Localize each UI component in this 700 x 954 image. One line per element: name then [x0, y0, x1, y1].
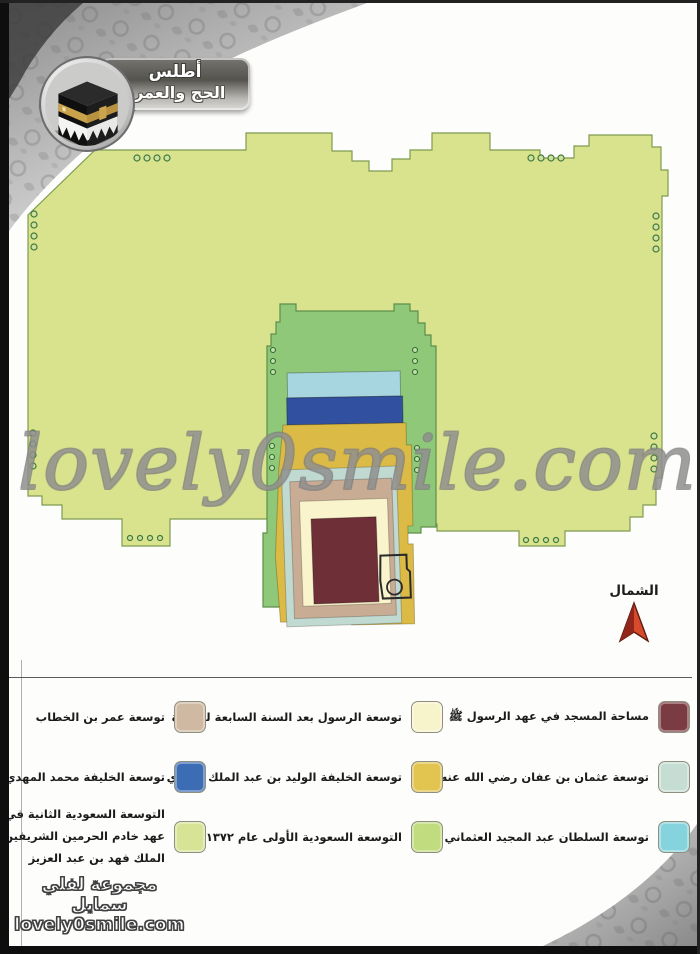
legend-item-ottoman-abdulmajid-expansion: توسعة السلطان عبد المجيد العثماني	[443, 821, 690, 853]
legend-label: التوسعة السعودية الأولى عام ١٣٧٢ هـ	[190, 830, 402, 844]
page-edge-left	[0, 0, 9, 954]
atlas-page: lovely0smile.com أطلس الحج والعمرة	[0, 0, 700, 954]
region-abbasid-mahdi-expansion	[287, 396, 403, 425]
legend-item-second-saudi-fahd-expansion: التوسعة السعودية الثانية في عهد خادم الح…	[0, 804, 206, 870]
legend-label: توسعة السلطان عبد المجيد العثماني	[444, 830, 649, 844]
separator-line	[9, 677, 692, 678]
legend: مساحة المسجد في عهد الرسول ﷺ توسعة الرسو…	[12, 687, 690, 867]
legend-label: توسعة الرسول بعد السنة السابعة للهجرة	[172, 710, 402, 724]
north-arrow-icon	[612, 601, 656, 645]
legend-swatch	[658, 761, 690, 793]
legend-label: توسعة عثمان بن عفان رضي الله عنه	[441, 770, 649, 784]
legend-swatch	[174, 821, 206, 853]
legend-swatch	[658, 701, 690, 733]
region-prophet-mosque-original	[311, 517, 379, 604]
legend-item-umayyad-walid-expansion: توسعة الخليفة الوليد بن عبد الملك الأموي	[206, 761, 443, 793]
legend-swatch	[174, 701, 206, 733]
page-edge-bottom	[0, 946, 700, 954]
footer: مجموعة لفلي سمايل lovely0smile.com	[12, 875, 187, 935]
legend-swatch	[658, 821, 690, 853]
footer-site-url: lovely0smile.com	[12, 915, 187, 935]
legend-item-first-saudi-expansion: التوسعة السعودية الأولى عام ١٣٧٢ هـ	[206, 821, 443, 853]
legend-item-umar-expansion: توسعة عمر بن الخطاب	[0, 701, 206, 733]
north-indicator: الشمال	[600, 583, 668, 649]
legend-item-prophet-expansion: توسعة الرسول بعد السنة السابعة للهجرة	[206, 701, 443, 733]
region-ottoman-abdulmajid-expansion	[287, 371, 400, 398]
footer-group-name: مجموعة لفلي سمايل	[12, 875, 187, 915]
north-label: الشمال	[600, 583, 668, 599]
legend-swatch	[411, 701, 443, 733]
legend-label: توسعة الخليفة محمد المهدي العباسي	[0, 770, 165, 784]
legend-item-abbasid-mahdi-expansion: توسعة الخليفة محمد المهدي العباسي	[0, 761, 206, 793]
legend-swatch	[411, 761, 443, 793]
legend-label: توسعة عمر بن الخطاب	[36, 710, 165, 724]
legend-swatch	[411, 821, 443, 853]
kaaba-logo-icon	[38, 55, 136, 153]
legend-label: مساحة المسجد في عهد الرسول ﷺ	[449, 709, 649, 726]
page-edge-top	[0, 0, 700, 3]
legend-item-uthman-expansion: توسعة عثمان بن عفان رضي الله عنه	[443, 761, 690, 793]
legend-swatch	[174, 761, 206, 793]
legend-label: التوسعة السعودية الثانية في عهد خادم الح…	[0, 804, 165, 870]
legend-item-prophet-mosque: مساحة المسجد في عهد الرسول ﷺ	[443, 701, 690, 733]
